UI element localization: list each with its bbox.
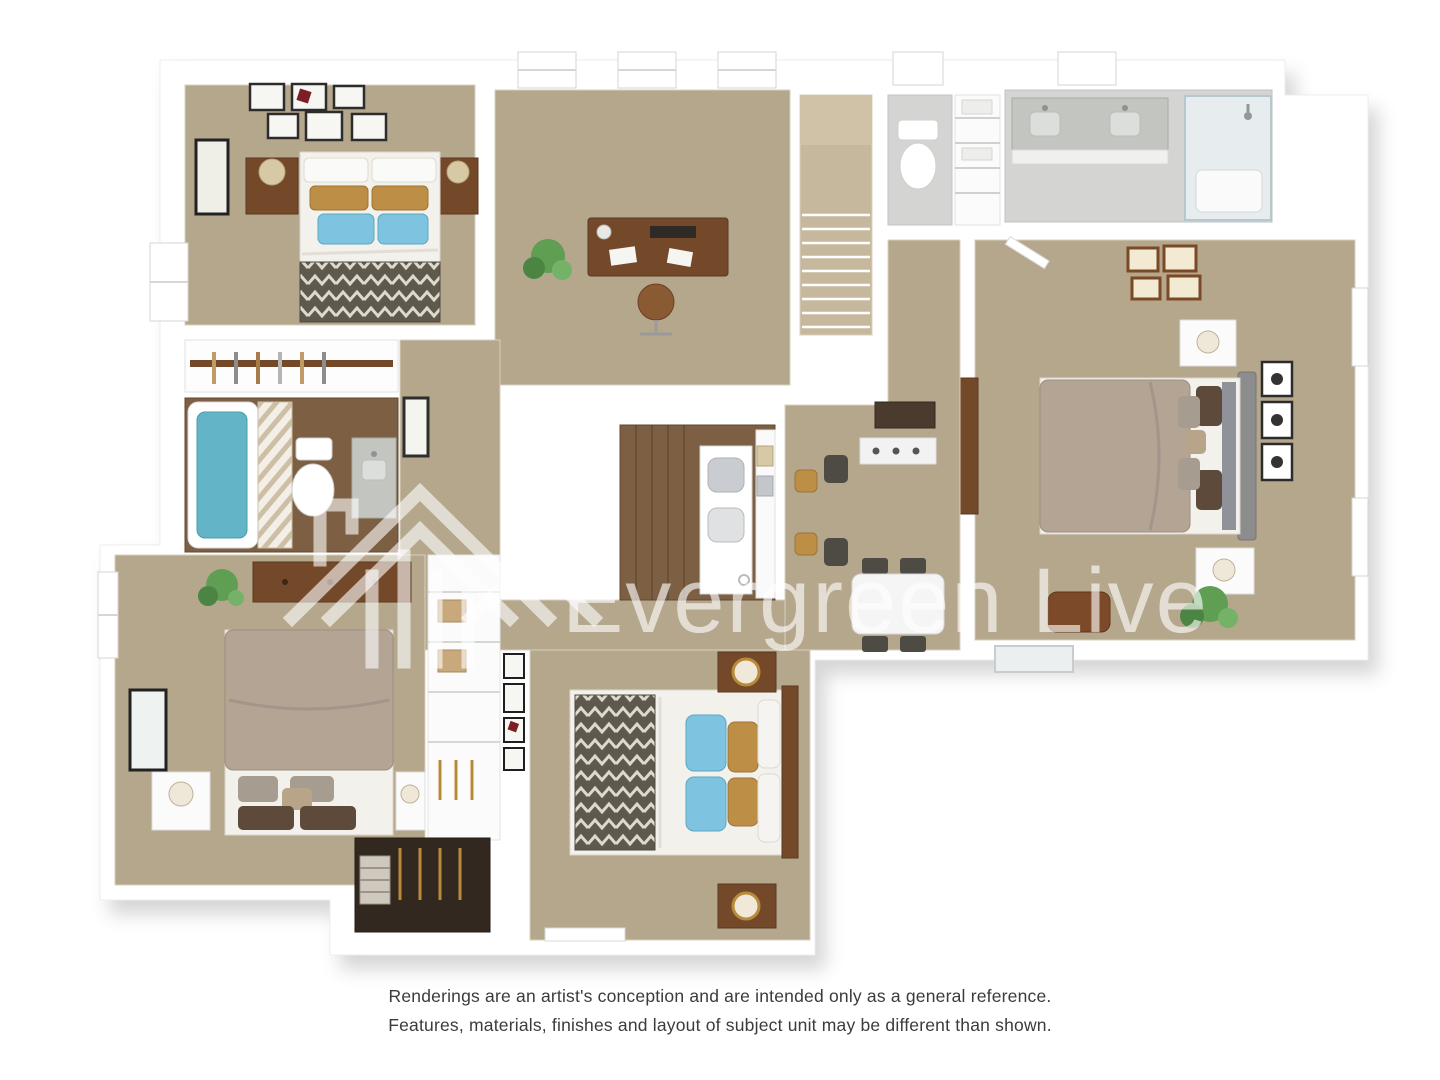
vanity	[352, 438, 396, 518]
closet-hall	[185, 340, 398, 392]
window	[1058, 52, 1116, 85]
wall-art	[130, 690, 166, 770]
wall-art-stack	[1262, 362, 1292, 480]
chevron-throw	[575, 695, 655, 850]
globe-lamp	[169, 782, 193, 806]
den-office	[495, 52, 872, 385]
disclaimer-line-1: Renderings are an artist's conception an…	[0, 982, 1440, 1011]
window	[150, 243, 188, 321]
hall-art	[404, 398, 428, 456]
closet-rod	[190, 360, 393, 367]
bed-queen	[570, 686, 798, 858]
globe-lamp	[401, 785, 419, 803]
floor-plan-page: Evergreen Live Renderings are an artist'…	[0, 0, 1440, 1080]
gallery-frames	[504, 654, 524, 770]
double-vanity	[1012, 98, 1168, 164]
desk	[588, 218, 728, 276]
dining-chair	[824, 455, 848, 483]
linen-closet	[955, 95, 1000, 225]
globe-lamp	[1213, 559, 1235, 581]
watermark-text: Evergreen Live	[562, 550, 1209, 652]
window	[518, 52, 776, 88]
water-closet	[888, 52, 952, 225]
round-lamp	[733, 659, 759, 685]
window	[893, 52, 943, 85]
table-lamp	[259, 159, 285, 185]
floor-plan-rendering: Evergreen Live	[0, 0, 1440, 1080]
disclaimer-line-2: Features, materials, finishes and layout…	[0, 1011, 1440, 1040]
kitchen-counter	[860, 438, 936, 464]
globe-lamp	[1197, 331, 1219, 353]
table-lamp	[447, 161, 469, 183]
bar-stool	[795, 470, 817, 492]
door-leaf	[545, 928, 625, 941]
dresser	[958, 378, 978, 514]
bed-king	[1040, 372, 1256, 540]
console-table	[875, 402, 935, 428]
shower-curtain	[258, 402, 292, 548]
window	[98, 572, 118, 658]
disclaimer-caption: Renderings are an artist's conception an…	[0, 982, 1440, 1040]
wall-art	[196, 140, 228, 214]
bed-queen	[300, 152, 440, 322]
round-lamp	[733, 893, 759, 919]
chevron-throw	[300, 262, 440, 322]
dark-closet	[355, 838, 490, 932]
bathroom-2	[185, 398, 398, 552]
staircase	[800, 95, 872, 335]
walk-in-shower	[1185, 96, 1271, 220]
bathtub	[188, 402, 258, 548]
toilet	[898, 120, 938, 189]
bedroom-1	[150, 84, 478, 325]
